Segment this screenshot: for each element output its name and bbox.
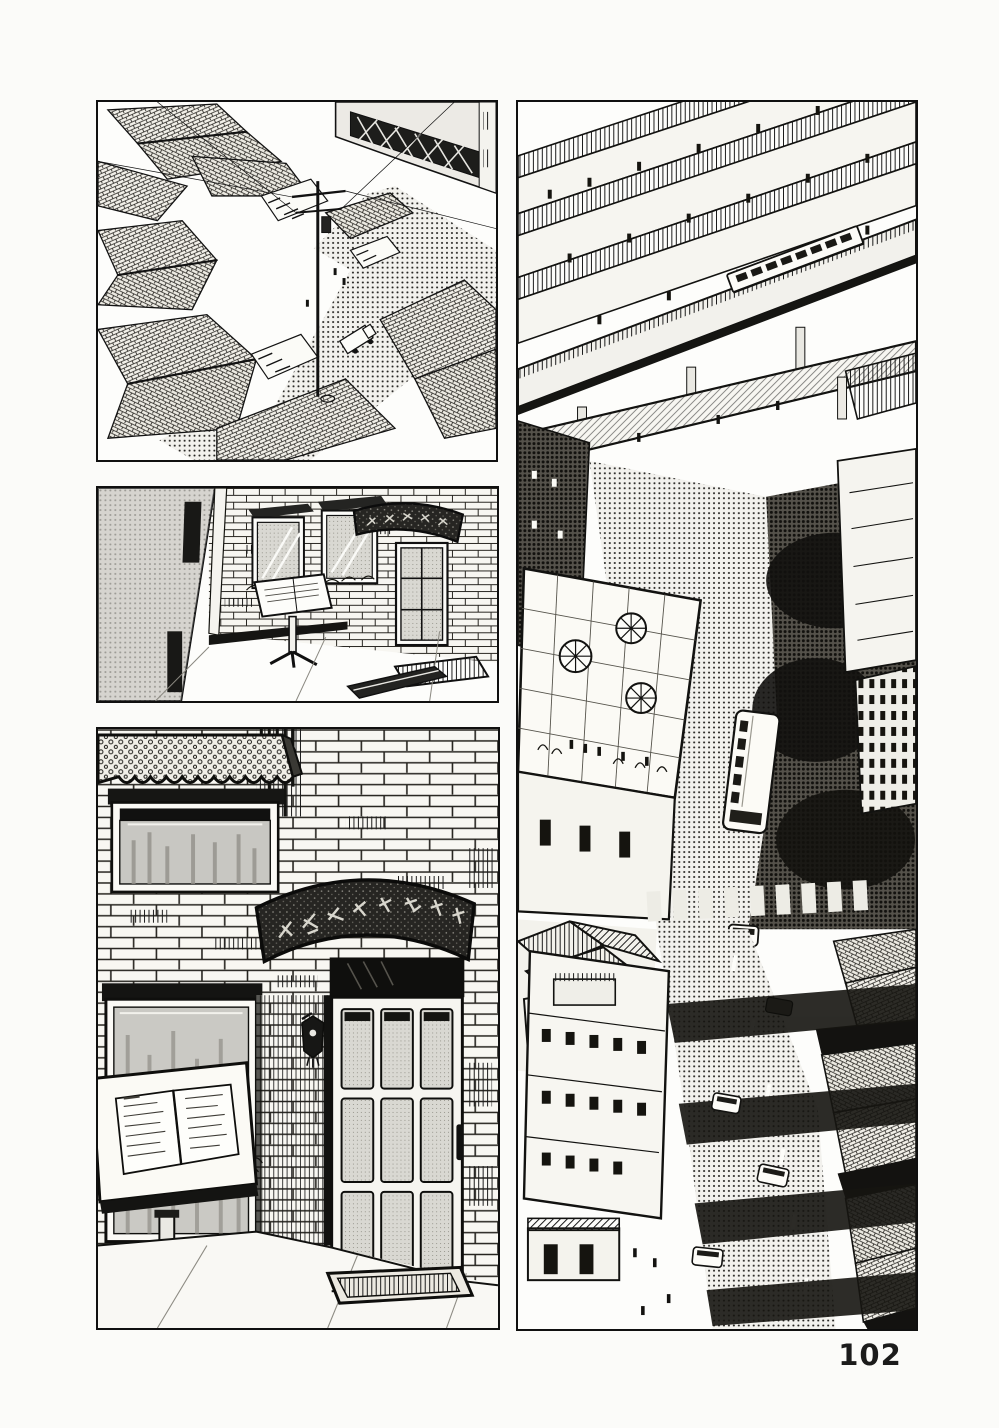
window-upper: [108, 789, 284, 892]
panel-city-street-aerial: [516, 100, 918, 1331]
doormat: [328, 1267, 473, 1303]
parasol: [560, 640, 592, 672]
parasol: [626, 683, 656, 713]
entrance-door: [332, 997, 464, 1291]
bistro-door: [396, 543, 447, 645]
panel-bistro-front: [96, 486, 499, 703]
door-handle: [456, 1124, 463, 1160]
awning: [98, 735, 302, 783]
panel-bistro-entrance: [96, 727, 500, 1330]
panel-rooftops-aerial: [96, 100, 498, 462]
white-building: [524, 951, 669, 1218]
page-number: 102: [820, 1338, 920, 1372]
transom: [330, 957, 465, 997]
parasol: [616, 613, 646, 643]
manga-page: 102: [0, 0, 999, 1428]
